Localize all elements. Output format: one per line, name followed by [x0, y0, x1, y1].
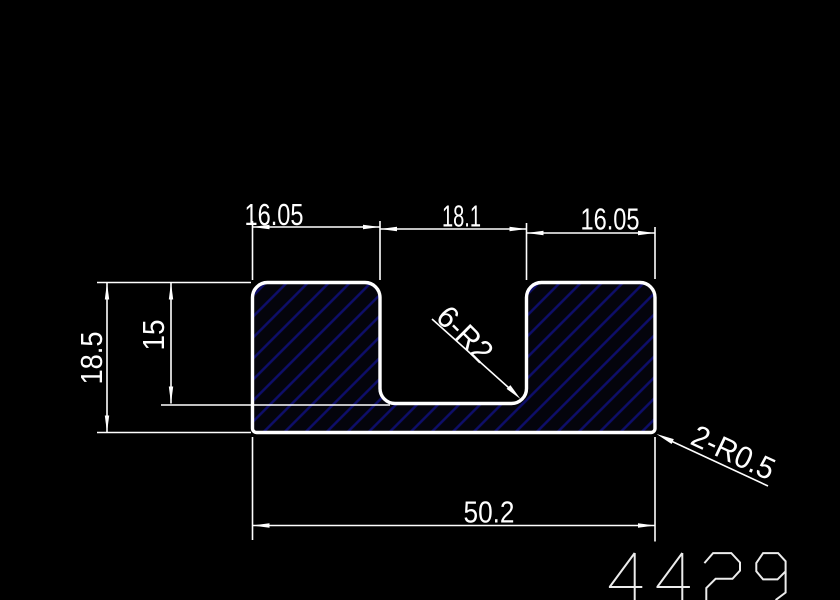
svg-text:15: 15 — [136, 320, 171, 351]
svg-text:18.5: 18.5 — [74, 332, 109, 385]
svg-text:50.2: 50.2 — [464, 495, 515, 530]
svg-text:16.05: 16.05 — [581, 202, 640, 237]
svg-text:16.05: 16.05 — [245, 197, 304, 232]
svg-text:18.1: 18.1 — [442, 199, 481, 234]
